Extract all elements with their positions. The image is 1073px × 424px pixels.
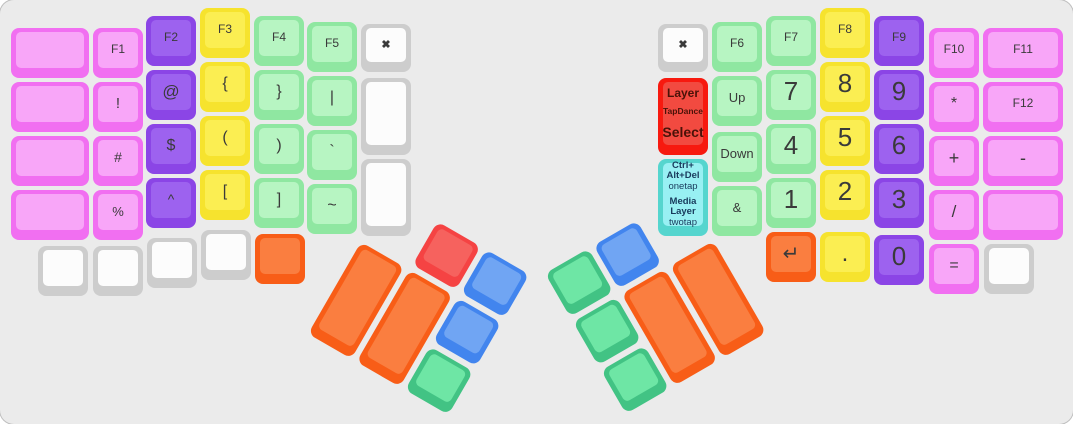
key-plus-face: +: [934, 140, 974, 176]
key-num-0[interactable]: 0: [874, 235, 924, 285]
key-blank-left-bottom-2[interactable]: [93, 246, 143, 296]
key-close-right-label: ✖: [678, 39, 687, 51]
key-f8[interactable]: F8: [820, 8, 870, 58]
key-f3-label: F3: [218, 23, 232, 36]
key-dollar-face: $: [151, 128, 191, 164]
key-blank-left-bottom-3[interactable]: [147, 238, 197, 288]
key-f7-face: F7: [771, 20, 811, 56]
key-close-right[interactable]: ✖: [658, 24, 708, 72]
key-f8-face: F8: [825, 12, 865, 48]
key-tilde-label: ~: [327, 197, 336, 215]
key-f11-face: F11: [988, 32, 1058, 68]
key-backtick[interactable]: `: [307, 130, 357, 180]
left-thumb-red-face: [422, 227, 475, 278]
key-minus-face: -: [988, 140, 1058, 176]
key-brace-close-face: }: [259, 74, 299, 110]
key-f6[interactable]: F6: [712, 22, 762, 72]
key-num-5-face: 5: [825, 120, 865, 156]
key-slash-face: /: [934, 194, 974, 230]
key-paren-open-label: (: [222, 129, 227, 147]
key-brace-close[interactable]: }: [254, 70, 304, 120]
right-thumb-green-mid-face: [579, 303, 632, 354]
key-pipe[interactable]: |: [307, 76, 357, 126]
key-slash[interactable]: /: [929, 190, 979, 240]
key-paren-close-face: ): [259, 128, 299, 164]
key-asterisk-label: *: [951, 95, 957, 113]
key-exclamation-face: !: [98, 86, 138, 122]
key-plus-label: +: [949, 148, 960, 168]
key-down-face: Down: [717, 136, 757, 172]
key-bracket-open[interactable]: [: [200, 170, 250, 220]
key-f2-label: F2: [164, 31, 178, 44]
key-blank-left-bottom-4[interactable]: [201, 230, 251, 280]
key-equals-label: =: [949, 257, 958, 275]
right-thumb-blue-top-face: [600, 226, 653, 277]
key-num-7[interactable]: 7: [766, 70, 816, 120]
key-blank-right-outer[interactable]: [983, 190, 1063, 240]
key-period-label: .: [842, 241, 849, 268]
key-f10[interactable]: F10: [929, 28, 979, 78]
key-equals[interactable]: =: [929, 244, 979, 294]
key-blank-left-bottom-3-face: [152, 242, 192, 278]
key-num-3-label: 3: [892, 185, 906, 214]
key-close-left-face: ✖: [366, 28, 406, 62]
key-layer-tapdance-select-label-line-2: Select: [662, 125, 703, 141]
key-close-right-face: ✖: [663, 28, 703, 62]
key-num-8-face: 8: [825, 66, 865, 102]
key-down-label: Down: [720, 147, 753, 162]
key-caret[interactable]: ^: [146, 178, 196, 228]
key-bracket-close-face: ]: [259, 182, 299, 218]
key-blank-right-bottom-face: [989, 248, 1029, 284]
key-layer-tapdance-select-label-line-0: Layer: [667, 87, 699, 100]
key-f3-face: F3: [205, 12, 245, 48]
key-f4-face: F4: [259, 20, 299, 56]
left-thumb-blue-mid-face: [442, 304, 495, 355]
key-layer-tapdance-select-label-line-1: TapDance: [663, 107, 703, 117]
key-f9-face: F9: [879, 20, 919, 56]
key-f2-face: F2: [151, 20, 191, 56]
key-bracket-close[interactable]: ]: [254, 178, 304, 228]
key-num-2-label: 2: [838, 177, 852, 206]
key-blank-left-inner-tall-1[interactable]: [361, 78, 411, 155]
key-f12[interactable]: F12: [983, 82, 1063, 132]
key-num-9-face: 9: [879, 74, 919, 110]
key-f9-label: F9: [892, 31, 906, 44]
key-close-left-label: ✖: [381, 39, 390, 51]
key-blank-left-inner-tall-1-face: [366, 82, 406, 145]
key-ctrl-alt-del-media-layer[interactable]: Ctrl+Alt+DelonetapMediaLayertwotap: [658, 159, 708, 236]
key-paren-close[interactable]: ): [254, 124, 304, 174]
key-f8-label: F8: [838, 23, 852, 36]
key-paren-open[interactable]: (: [200, 116, 250, 166]
key-num-6-face: 6: [879, 128, 919, 164]
key-backtick-face: `: [312, 134, 352, 170]
key-num-4-face: 4: [771, 128, 811, 164]
key-at[interactable]: @: [146, 70, 196, 120]
key-blank-left-outer-r4[interactable]: [11, 190, 89, 240]
key-bracket-open-label: [: [223, 183, 227, 201]
key-num-5-label: 5: [838, 123, 852, 152]
key-num-4[interactable]: 4: [766, 124, 816, 174]
key-minus-label: -: [1020, 148, 1026, 168]
key-enter-face: ↵: [771, 236, 811, 272]
key-brace-open-label: {: [222, 75, 227, 93]
key-percent-face: %: [98, 194, 138, 230]
key-f9[interactable]: F9: [874, 16, 924, 66]
key-f5-face: F5: [312, 26, 352, 62]
key-exclamation-label: !: [116, 96, 120, 113]
key-blank-left-bottom-1-face: [43, 250, 83, 286]
key-num-8[interactable]: 8: [820, 62, 870, 112]
key-exclamation[interactable]: !: [93, 82, 143, 132]
key-dollar[interactable]: $: [146, 124, 196, 174]
key-hash-label: #: [114, 150, 122, 166]
key-num-6-label: 6: [892, 131, 906, 160]
key-num-9-label: 9: [892, 77, 906, 106]
key-asterisk-face: *: [934, 86, 974, 122]
key-blank-left-inner-tall-2-face: [366, 163, 406, 226]
key-up[interactable]: Up: [712, 76, 762, 126]
key-brace-open-face: {: [205, 66, 245, 102]
key-at-label: @: [162, 82, 179, 101]
key-num-5[interactable]: 5: [820, 116, 870, 166]
key-num-0-label: 0: [892, 242, 906, 271]
key-bracket-close-label: ]: [277, 191, 281, 209]
key-paren-open-face: (: [205, 120, 245, 156]
key-f1-face: F1: [98, 32, 138, 68]
key-enter[interactable]: ↵: [766, 232, 816, 282]
key-period[interactable]: .: [820, 232, 870, 282]
key-brace-open[interactable]: {: [200, 62, 250, 112]
key-layer-tapdance-select-face: LayerTapDanceSelect: [663, 82, 703, 145]
key-hash-face: #: [98, 140, 138, 176]
key-blank-right-bottom[interactable]: [984, 244, 1034, 294]
key-up-label: Up: [729, 91, 746, 106]
key-ampersand[interactable]: &: [712, 186, 762, 236]
key-dollar-label: $: [167, 137, 176, 155]
key-layer-tapdance-select[interactable]: LayerTapDanceSelect: [658, 78, 708, 155]
key-caret-face: ^: [151, 182, 191, 218]
key-equals-face: =: [934, 248, 974, 284]
keymap-canvas: F1!#%F2@$^F3{([F4})]F5|`~✖✖LayerTapDance…: [0, 0, 1073, 424]
key-f10-label: F10: [944, 43, 965, 56]
key-num-7-face: 7: [771, 74, 811, 110]
key-f5-label: F5: [325, 37, 339, 50]
key-f1[interactable]: F1: [93, 28, 143, 78]
right-thumb-green-top-face: [551, 254, 604, 305]
key-num-1[interactable]: 1: [766, 178, 816, 228]
key-f5[interactable]: F5: [307, 22, 357, 72]
key-blank-left-bottom-orange[interactable]: [255, 234, 305, 284]
key-num-0-face: 0: [879, 239, 919, 275]
key-percent-label: %: [112, 205, 124, 220]
key-slash-label: /: [952, 202, 957, 221]
key-hash[interactable]: #: [93, 136, 143, 186]
key-f2[interactable]: F2: [146, 16, 196, 66]
key-blank-left-outer-r1-face: [16, 32, 84, 68]
key-blank-left-outer-r4-face: [16, 194, 84, 230]
key-num-4-label: 4: [784, 131, 798, 160]
key-f4-label: F4: [272, 31, 286, 44]
key-num-2[interactable]: 2: [820, 170, 870, 220]
key-num-7-label: 7: [784, 77, 798, 106]
left-thumb-blue-top-face: [470, 255, 523, 306]
key-blank-right-outer-face: [988, 194, 1058, 230]
key-num-2-face: 2: [825, 174, 865, 210]
key-minus[interactable]: -: [983, 136, 1063, 186]
key-f10-face: F10: [934, 32, 974, 68]
key-f12-face: F12: [988, 86, 1058, 122]
key-period-face: .: [825, 236, 865, 272]
key-num-1-face: 1: [771, 182, 811, 218]
key-blank-left-outer-r3[interactable]: [11, 136, 89, 186]
key-down[interactable]: Down: [712, 132, 762, 182]
key-pipe-label: |: [330, 89, 334, 107]
key-f6-label: F6: [730, 37, 744, 50]
key-num-1-label: 1: [784, 185, 798, 214]
key-at-face: @: [151, 74, 191, 110]
key-backtick-label: `: [329, 143, 334, 161]
key-percent[interactable]: %: [93, 190, 143, 240]
key-up-face: Up: [717, 80, 757, 116]
key-ctrl-alt-del-media-layer-label-line-2: onetap: [668, 182, 697, 193]
key-f1-label: F1: [111, 43, 125, 56]
key-close-left[interactable]: ✖: [361, 24, 411, 72]
key-blank-left-bottom-orange-face: [260, 238, 300, 274]
key-paren-close-label: ): [276, 137, 281, 155]
key-plus[interactable]: +: [929, 136, 979, 186]
key-f6-face: F6: [717, 26, 757, 62]
key-blank-left-bottom-1[interactable]: [38, 246, 88, 296]
key-bracket-open-face: [: [205, 174, 245, 210]
key-brace-close-label: }: [276, 83, 281, 101]
key-ctrl-alt-del-media-layer-label-line-5: twotap: [669, 218, 697, 229]
key-tilde-face: ~: [312, 188, 352, 224]
key-num-3[interactable]: 3: [874, 178, 924, 228]
key-ampersand-face: &: [717, 190, 757, 226]
key-blank-left-outer-r3-face: [16, 140, 84, 176]
key-f7-label: F7: [784, 31, 798, 44]
left-thumb-green-face: [414, 352, 467, 403]
key-blank-left-bottom-4-face: [206, 234, 246, 270]
key-blank-left-outer-r2[interactable]: [11, 82, 89, 132]
key-f11[interactable]: F11: [983, 28, 1063, 78]
key-num-3-face: 3: [879, 182, 919, 218]
key-f12-label: F12: [1013, 97, 1034, 110]
key-blank-left-bottom-2-face: [98, 250, 138, 286]
key-num-6[interactable]: 6: [874, 124, 924, 174]
key-ampersand-label: &: [733, 201, 742, 216]
key-pipe-face: |: [312, 80, 352, 116]
key-tilde[interactable]: ~: [307, 184, 357, 234]
key-f7[interactable]: F7: [766, 16, 816, 66]
key-f3[interactable]: F3: [200, 8, 250, 58]
key-asterisk[interactable]: *: [929, 82, 979, 132]
right-thumb-green-bottom-face: [607, 351, 660, 402]
key-ctrl-alt-del-media-layer-face: Ctrl+Alt+DelonetapMediaLayertwotap: [663, 163, 703, 226]
key-caret-label: ^: [168, 192, 175, 208]
key-blank-left-outer-r1[interactable]: [11, 28, 89, 78]
key-enter-label: ↵: [783, 243, 800, 265]
key-num-8-label: 8: [838, 69, 852, 98]
key-num-9[interactable]: 9: [874, 70, 924, 120]
key-f11-label: F11: [1013, 43, 1033, 56]
key-blank-left-inner-tall-2[interactable]: [361, 159, 411, 236]
key-f4[interactable]: F4: [254, 16, 304, 66]
key-blank-left-outer-r2-face: [16, 86, 84, 122]
